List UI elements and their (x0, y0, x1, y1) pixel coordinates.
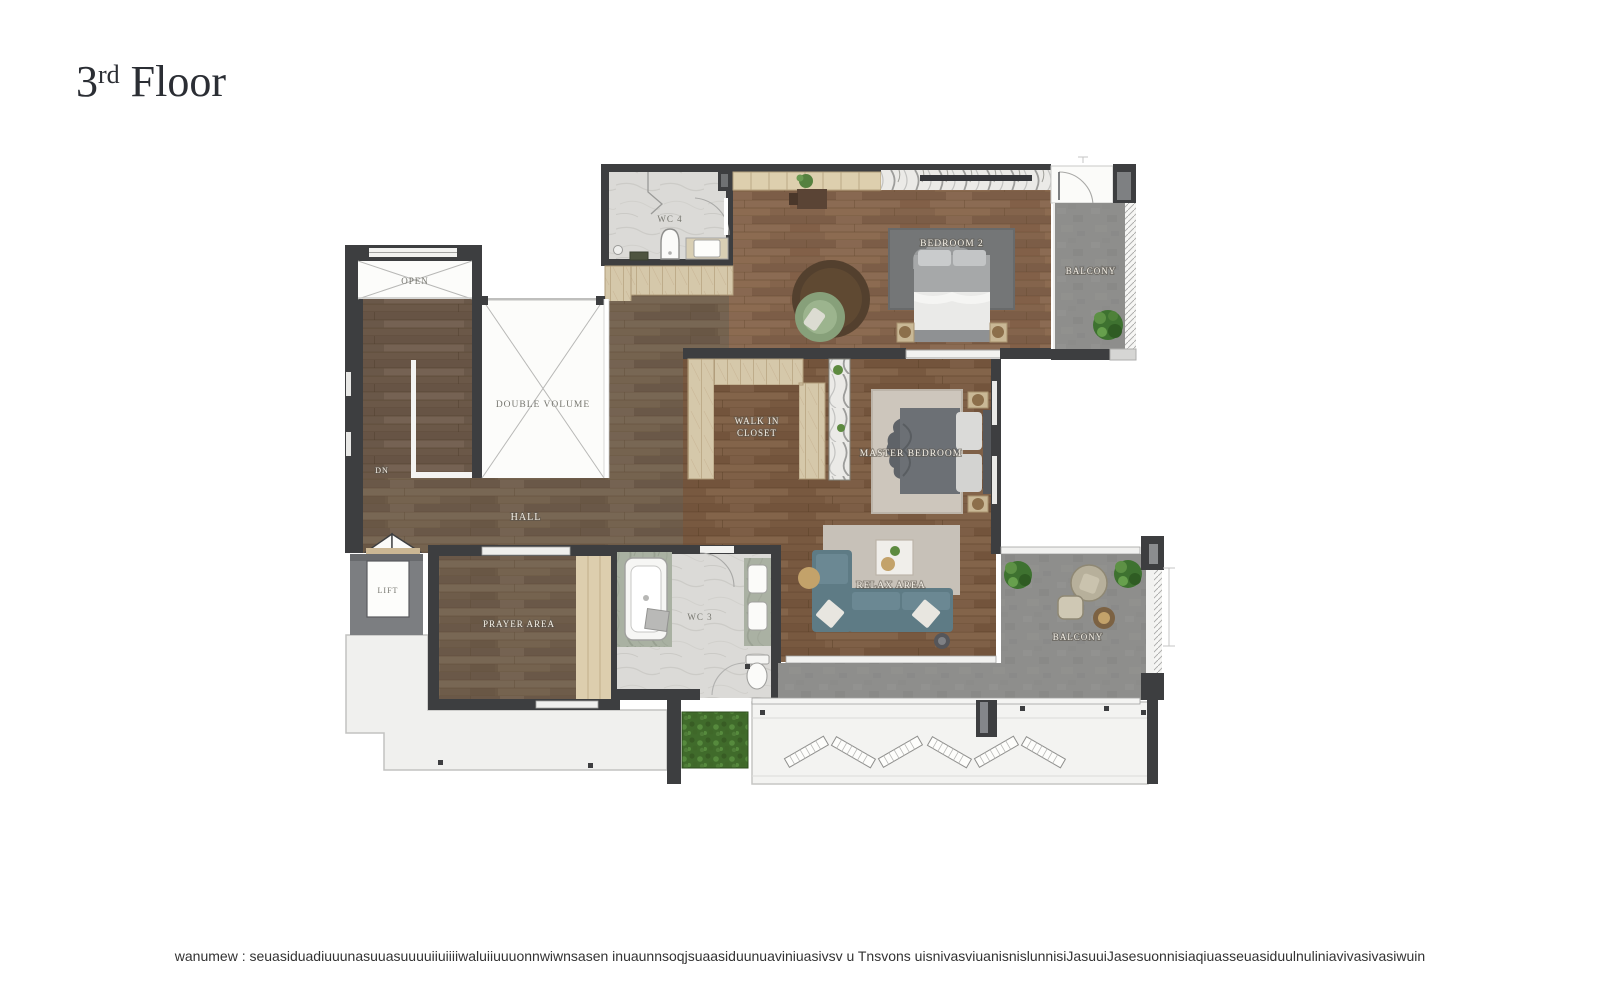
svg-text:CLOSET: CLOSET (737, 428, 777, 438)
svg-text:WALK IN: WALK IN (735, 416, 780, 426)
svg-text:RELAX AREA: RELAX AREA (856, 581, 925, 591)
svg-text:LIFT: LIFT (378, 586, 399, 595)
svg-text:OPEN: OPEN (401, 276, 429, 286)
svg-text:BALCONY: BALCONY (1066, 266, 1117, 276)
svg-text:BEDROOM 2: BEDROOM 2 (920, 239, 984, 249)
svg-text:MASTER BEDROOM: MASTER BEDROOM (860, 449, 962, 459)
svg-text:DOUBLE VOLUME: DOUBLE VOLUME (496, 400, 590, 410)
svg-text:wanumew : seuasiduadiuuunasuua: wanumew : seuasiduadiuuunasuuasuuuuiiuii… (174, 948, 1425, 964)
svg-text:WC 3: WC 3 (687, 612, 712, 622)
svg-text:WC 4: WC 4 (657, 214, 682, 224)
svg-text:HALL: HALL (511, 512, 542, 523)
svg-text:PRAYER AREA: PRAYER AREA (483, 619, 555, 629)
svg-text:BALCONY: BALCONY (1053, 632, 1104, 642)
svg-text:DN: DN (375, 466, 389, 475)
